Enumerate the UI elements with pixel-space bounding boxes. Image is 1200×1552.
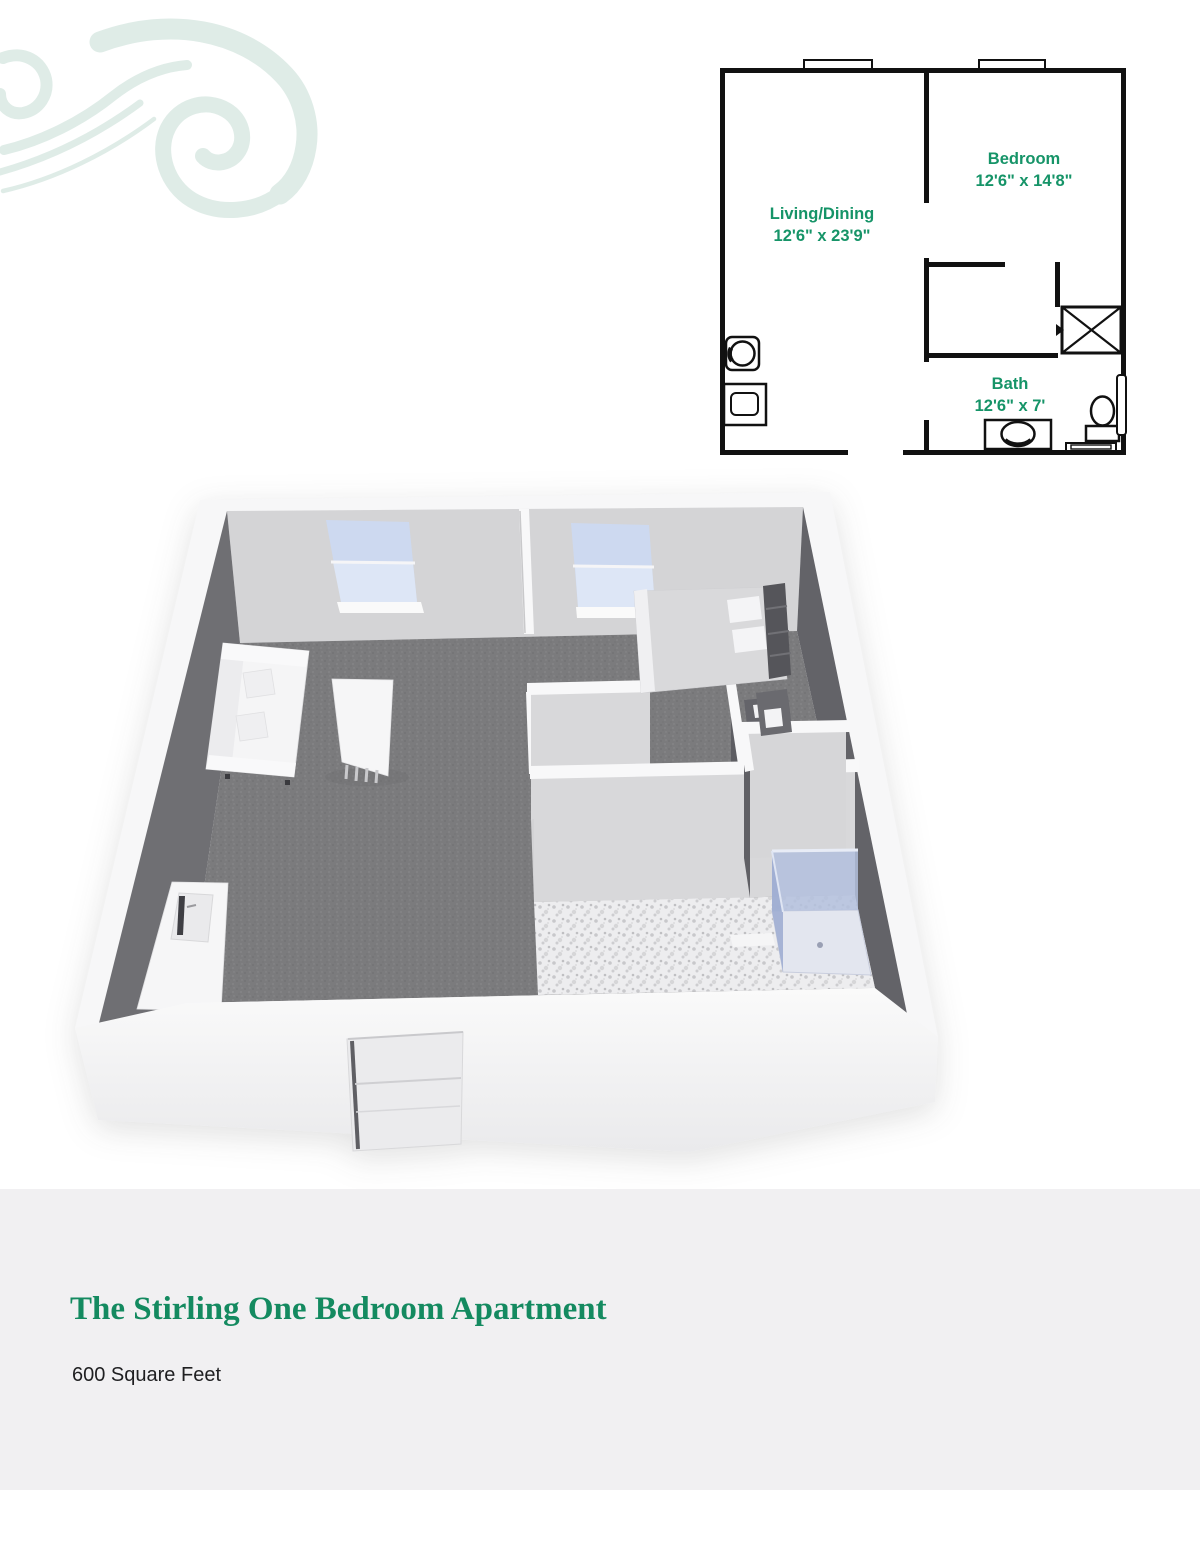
room-name-bedroom: Bedroom [988, 150, 1060, 168]
washer-symbol [726, 337, 759, 370]
front-wall [75, 988, 938, 1152]
entry-door [347, 1032, 463, 1151]
floor-plan-2d: Living/Dining 12'6" x 23'9" Bedroom 12'6… [718, 55, 1134, 460]
nightstand [756, 689, 792, 736]
room-dims-living: 12'6" x 23'9" [774, 227, 871, 245]
square-footage: 600 Square Feet [72, 1363, 1130, 1387]
sofa [206, 643, 309, 785]
swirl-strokes [0, 29, 307, 210]
window-symbol [804, 60, 872, 69]
bed [634, 583, 791, 693]
vanity-sink-symbol [985, 420, 1051, 449]
brand-swirl-watermark [0, 0, 340, 240]
toilet-symbol [1086, 397, 1119, 442]
room-name-living: Living/Dining [770, 205, 875, 223]
room-label-bedroom: Bedroom 12'6" x 14'8" [976, 150, 1073, 190]
room-label-living: Living/Dining 12'6" x 23'9" [770, 205, 875, 245]
shower-glass-symbol [1117, 375, 1126, 435]
floor-plan-walls [720, 60, 1126, 455]
living-window [326, 520, 424, 613]
footer-band: The Stirling One Bedroom Apartment 600 S… [0, 1189, 1200, 1490]
floor-plan-3d-render [75, 483, 943, 1155]
laundry-sink-symbol [724, 384, 766, 425]
bath-mat-symbol [1066, 443, 1116, 451]
page-title: The Stirling One Bedroom Apartment [70, 1289, 1130, 1329]
room-dims-bath: 12'6" x 7' [975, 397, 1046, 415]
room-label-bath: Bath 12'6" x 7' [975, 375, 1046, 415]
window-symbol [979, 60, 1045, 69]
apartment-flyer-page: { "floor_plan": { "label_color": "#16946… [0, 0, 1200, 1552]
room-name-bath: Bath [992, 375, 1029, 393]
room-dims-bedroom: 12'6" x 14'8" [976, 172, 1073, 190]
closet-symbol [1056, 307, 1121, 353]
